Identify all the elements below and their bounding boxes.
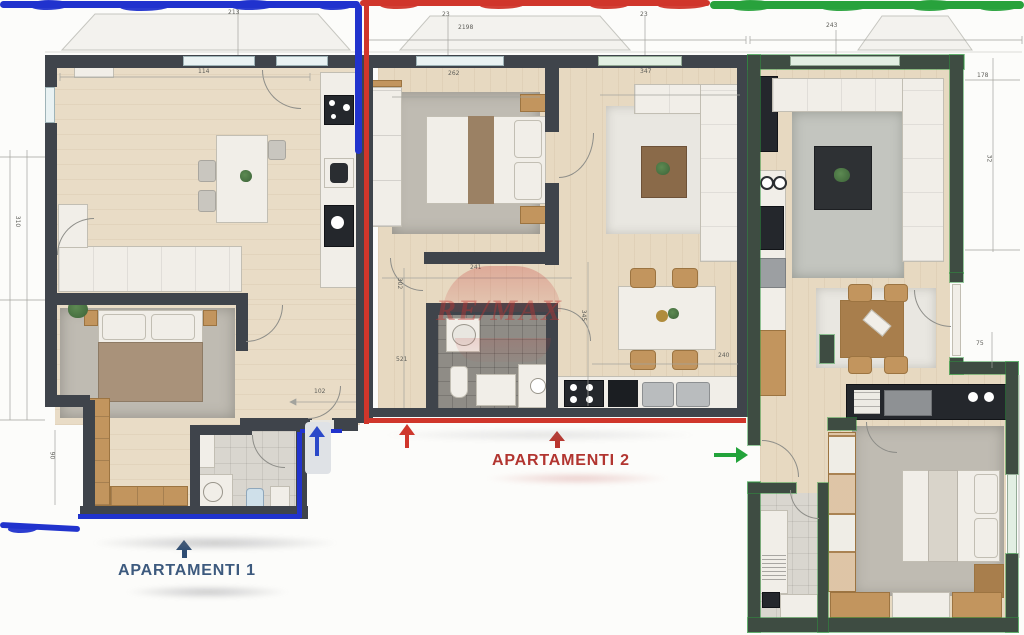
apartment1-marker-line [355,4,362,154]
apartment2-marker-line [364,4,369,424]
apartment1-marker-line [78,514,300,519]
dimension-label: 262 [448,70,459,77]
dimension-label: 75 [976,340,984,347]
watermark: RE/MAX [436,294,563,328]
dimension-label: 23 [640,11,648,18]
dimension-label: 102 [314,388,325,395]
apartment2-label: APARTAMENTI 2 [492,452,630,470]
dimension-label: 310 [14,216,21,227]
shadow [485,472,670,485]
dimension-label: 240 [718,352,729,359]
apartment1-entry-arrow-icon [315,436,319,456]
dimension-label: 32 [985,155,992,163]
dimension-label: 178 [977,72,988,79]
shadow [90,535,340,551]
dimension-label: 302 [396,278,403,289]
dimension-label: 521 [396,356,407,363]
dimension-label: 114 [198,68,209,75]
dimension-label: 345 [580,310,587,321]
shadow [125,585,290,599]
apartment1-marker-line [297,432,302,518]
dimension-label: 23 [442,11,450,18]
apartment3-entry-arrow-icon [736,447,748,463]
floor-plan: 213 23 2198 23 243 178 32 310 114 262 34… [0,0,1024,635]
dimension-label: 213 [228,9,239,16]
dimension-label: 2198 [458,24,473,31]
apartment1-label: APARTAMENTI 1 [118,562,256,580]
shadow [380,428,700,442]
dimension-label: 347 [640,68,651,75]
apartment2-marker-line [364,418,746,423]
dimension-label: 243 [826,22,837,29]
watermark-balloon [455,338,551,362]
apartment3-entry-arrow-icon [714,453,738,457]
dimension-label: 90 [48,452,55,460]
